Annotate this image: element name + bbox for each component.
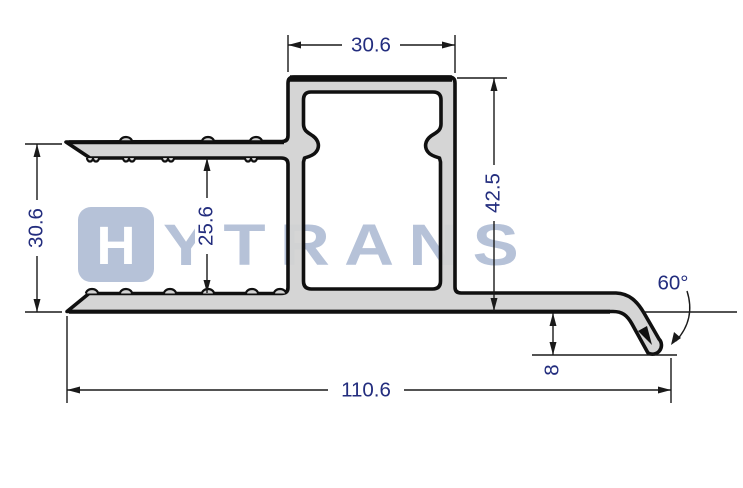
dim-flange-gap-label: 25.6 (195, 206, 218, 246)
dim-left-height-label: 30.6 (25, 208, 48, 248)
profile-drawing-canvas: H YTRANS 30.6 42.5 (0, 0, 743, 488)
dim-tip-drop-label: 8 (541, 364, 564, 375)
dim-top-width-label: 30.6 (351, 34, 391, 57)
watermark: H YTRANS (78, 207, 533, 282)
dim-overall-width: 110.6 (67, 316, 671, 403)
dim-overall-height-label: 42.5 (482, 173, 505, 213)
dim-top-width: 30.6 (288, 34, 455, 74)
watermark-tile-letter: H (97, 216, 136, 276)
dim-overall-width-label: 110.6 (341, 379, 391, 402)
dim-bend-angle-label: 60° (657, 272, 688, 295)
dim-left-height: 30.6 (25, 144, 63, 312)
watermark-brand-text: YTRANS (163, 213, 533, 278)
